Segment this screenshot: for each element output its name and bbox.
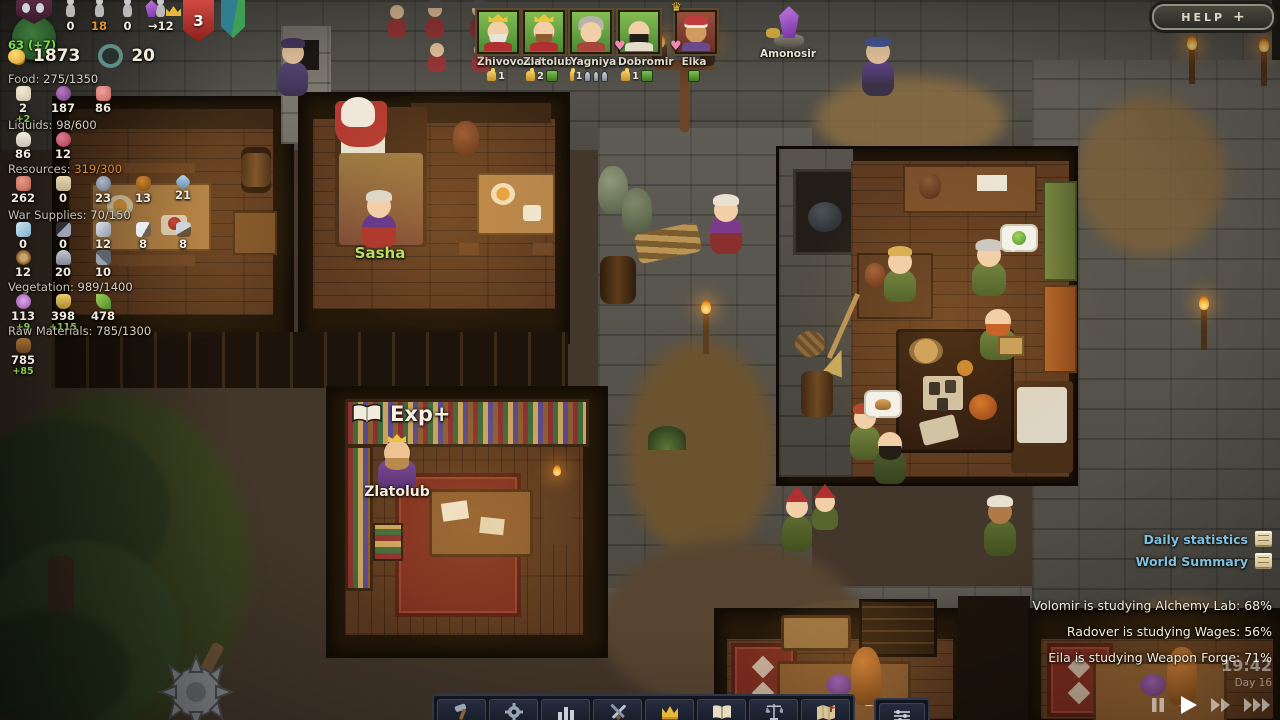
label-sasha: Sasha bbox=[325, 244, 435, 262]
helmet-badge-icon bbox=[593, 71, 600, 82]
threat-banner[interactable]: 3 bbox=[183, 0, 214, 42]
wall-torch bbox=[1196, 298, 1212, 350]
heart-icon: ♥ bbox=[670, 39, 682, 54]
gold-amount: 1873 bbox=[33, 46, 80, 66]
helmet-badge-icon bbox=[601, 71, 608, 82]
barrel bbox=[600, 256, 636, 304]
section-war-label: War Supplies: 70/150 bbox=[8, 208, 131, 222]
shield-icon bbox=[16, 250, 31, 265]
knowledge-book-icon bbox=[712, 704, 732, 720]
label-zlatolub: Zlatolub bbox=[347, 484, 447, 500]
clay-icon bbox=[16, 176, 31, 191]
wall-torch bbox=[1184, 38, 1200, 84]
character-villager[interactable] bbox=[980, 306, 1016, 360]
toolbar-laws-button[interactable] bbox=[749, 699, 798, 720]
character-villager[interactable] bbox=[874, 428, 906, 484]
sick-face-icon bbox=[1012, 231, 1026, 245]
fast-forward-icon[interactable] bbox=[1210, 697, 1232, 713]
section-vegetation-label: Vegetation: 989/1400 bbox=[8, 280, 133, 294]
open-book-icon bbox=[352, 404, 382, 424]
crown-icon: ♛ bbox=[671, 0, 682, 14]
toolbar-rulers-button[interactable] bbox=[645, 699, 694, 720]
notification-message[interactable]: Radover is studying Wages: 56% bbox=[872, 624, 1272, 639]
toolbar-military-button[interactable] bbox=[593, 699, 642, 720]
section-liquids-label: Liquids: 98/600 bbox=[8, 118, 97, 132]
game-viewport: Sasha Exp+ Zlatolub 63 (+7) 0 18 0 →12 3… bbox=[0, 0, 1280, 720]
character-sasha[interactable] bbox=[362, 190, 396, 248]
link-daily-statistics[interactable]: Daily statistics bbox=[1040, 531, 1272, 547]
ore-icon bbox=[96, 176, 111, 191]
fastest-forward-icon[interactable] bbox=[1243, 697, 1273, 713]
laws-scales-icon bbox=[765, 703, 783, 720]
berries-icon bbox=[56, 132, 71, 147]
section-war-items: 0 0 12 8 8 bbox=[6, 222, 200, 251]
screen-edge bbox=[1272, 0, 1280, 60]
portrait-dobromir[interactable]: ♥ Dobromir 1 bbox=[618, 10, 656, 82]
leaf-icon bbox=[96, 294, 111, 309]
tools-icon bbox=[96, 250, 111, 265]
study-badge-icon bbox=[688, 70, 700, 82]
clock-overlay: 19:42 Day 16 bbox=[1196, 656, 1272, 689]
options-sliders-icon bbox=[893, 709, 911, 720]
statistics-icon bbox=[557, 704, 575, 720]
helmet-badge-icon bbox=[584, 71, 591, 82]
pause-icon[interactable] bbox=[1150, 696, 1166, 714]
tools-amount: 20 bbox=[131, 46, 155, 66]
military-swords-icon bbox=[608, 703, 628, 720]
section-war-items-2: 12 20 10 bbox=[6, 250, 120, 279]
spiked-club bbox=[138, 636, 278, 720]
character-villager[interactable] bbox=[984, 494, 1016, 556]
study-badge-icon bbox=[546, 70, 558, 82]
production-gear-icon bbox=[505, 703, 523, 720]
relic-amonosir[interactable]: Amonosir bbox=[752, 4, 824, 60]
toolbar-build-button[interactable] bbox=[437, 699, 486, 720]
section-food-label: Food: 275/1350 bbox=[8, 72, 98, 86]
report-scroll-icon bbox=[1255, 553, 1272, 569]
heart-icon: ♥ bbox=[614, 39, 626, 54]
sword-icon bbox=[56, 222, 71, 237]
faction-pennant bbox=[221, 0, 245, 38]
help-button[interactable]: HELP+ bbox=[1152, 4, 1274, 30]
section-liquids-items: 86 12 bbox=[6, 132, 80, 161]
ice-icon bbox=[16, 222, 31, 237]
need-bubble-food[interactable] bbox=[864, 390, 902, 418]
portrait-zhivovolod[interactable]: Zhivovolod 1 bbox=[477, 10, 515, 82]
honey-icon bbox=[136, 176, 151, 191]
notification-message[interactable]: Volomir is studying Alchemy Lab: 68% bbox=[872, 598, 1272, 613]
section-resources-items: 262 0 23 13 21 bbox=[6, 176, 200, 205]
help-plus-icon: + bbox=[1233, 9, 1245, 25]
main-toolbar bbox=[432, 694, 855, 720]
jug-large bbox=[622, 188, 652, 236]
clock-day: Day 16 bbox=[1196, 677, 1272, 689]
helmet-icon bbox=[56, 250, 71, 265]
torch bbox=[698, 302, 714, 354]
relic-label: Amonosir bbox=[752, 48, 824, 60]
toolbar-knowledge-button[interactable] bbox=[697, 699, 746, 720]
section-raw-label: Raw Materials: 785/1300 bbox=[8, 324, 151, 338]
villager-arrival-icon bbox=[156, 4, 165, 17]
wall-torch bbox=[1256, 40, 1272, 86]
world-map-icon bbox=[816, 704, 836, 720]
character-villager[interactable] bbox=[388, 4, 406, 38]
dirt-patch bbox=[1076, 96, 1226, 256]
options-mini-toolbar bbox=[874, 698, 930, 720]
rulers-crown-icon bbox=[660, 704, 680, 720]
character-zlatolub[interactable] bbox=[378, 434, 416, 490]
flower-icon bbox=[16, 294, 31, 309]
clock-time: 19:42 bbox=[1196, 656, 1272, 675]
character-villager[interactable] bbox=[428, 42, 446, 72]
character-villager[interactable] bbox=[884, 246, 916, 302]
section-resources-label: Resources: 319/300 bbox=[8, 162, 122, 176]
build-hammer-icon bbox=[452, 703, 472, 720]
villager-icon bbox=[66, 4, 75, 17]
character-villager[interactable] bbox=[278, 38, 308, 96]
character-villager[interactable] bbox=[862, 36, 894, 96]
exp-gain-label: Exp+ bbox=[352, 402, 451, 426]
mood-bubble-sick[interactable] bbox=[1000, 224, 1038, 252]
toolbar-statistics-button[interactable] bbox=[541, 699, 590, 720]
character-villager[interactable] bbox=[812, 486, 838, 530]
population-row: 0 18 0 →12 bbox=[66, 4, 174, 33]
dirt-patch bbox=[626, 340, 776, 560]
light-glow bbox=[800, 160, 1100, 480]
resource-panel: 63 (+7) 0 18 0 →12 3 1873 20 Food: 275/1… bbox=[0, 0, 250, 380]
gold-coins-icon bbox=[8, 49, 25, 64]
tools-coil-icon bbox=[98, 44, 123, 68]
character-villager[interactable] bbox=[426, 2, 444, 38]
flour-icon bbox=[16, 86, 31, 101]
study-badge-icon bbox=[641, 70, 653, 82]
light-glow bbox=[330, 400, 610, 650]
villager-icon bbox=[95, 4, 104, 17]
approval-thumb-icon bbox=[487, 71, 496, 81]
character-villager[interactable] bbox=[782, 488, 812, 552]
link-world-summary[interactable]: World Summary bbox=[1040, 553, 1272, 569]
paper-icon bbox=[56, 176, 71, 191]
spear-icon bbox=[176, 222, 191, 237]
portrait-elka[interactable]: ♥♛ Elka bbox=[675, 10, 713, 82]
options-button[interactable] bbox=[879, 703, 925, 720]
meat-icon bbox=[96, 86, 111, 101]
portrait-zlatolub[interactable]: Zlatolub 2 bbox=[523, 10, 561, 82]
gold-row: 1873 20 bbox=[8, 44, 155, 68]
wheat-icon bbox=[56, 294, 71, 309]
playback-controls bbox=[1150, 694, 1273, 716]
section-raw-items: 785+85 bbox=[6, 338, 40, 377]
light-glow bbox=[300, 90, 590, 330]
portrait-yagniya[interactable]: Yagniya 1 bbox=[570, 10, 608, 82]
toolbar-map-button[interactable] bbox=[801, 699, 850, 720]
approval-thumb-icon bbox=[621, 71, 630, 81]
toolbar-production-button[interactable] bbox=[489, 699, 538, 720]
bread-icon bbox=[875, 399, 891, 410]
play-icon[interactable] bbox=[1177, 694, 1199, 716]
knife-icon bbox=[136, 222, 151, 237]
blade-icon bbox=[96, 222, 111, 237]
character-villager[interactable] bbox=[710, 192, 742, 254]
milk-icon bbox=[16, 132, 31, 147]
approval-thumb-icon bbox=[570, 71, 574, 81]
log-icon bbox=[16, 338, 31, 353]
fern bbox=[648, 426, 686, 450]
villager-icon bbox=[123, 4, 132, 17]
report-scroll-icon bbox=[1255, 531, 1272, 547]
plums-icon bbox=[56, 86, 71, 101]
approval-thumb-icon bbox=[526, 71, 535, 81]
